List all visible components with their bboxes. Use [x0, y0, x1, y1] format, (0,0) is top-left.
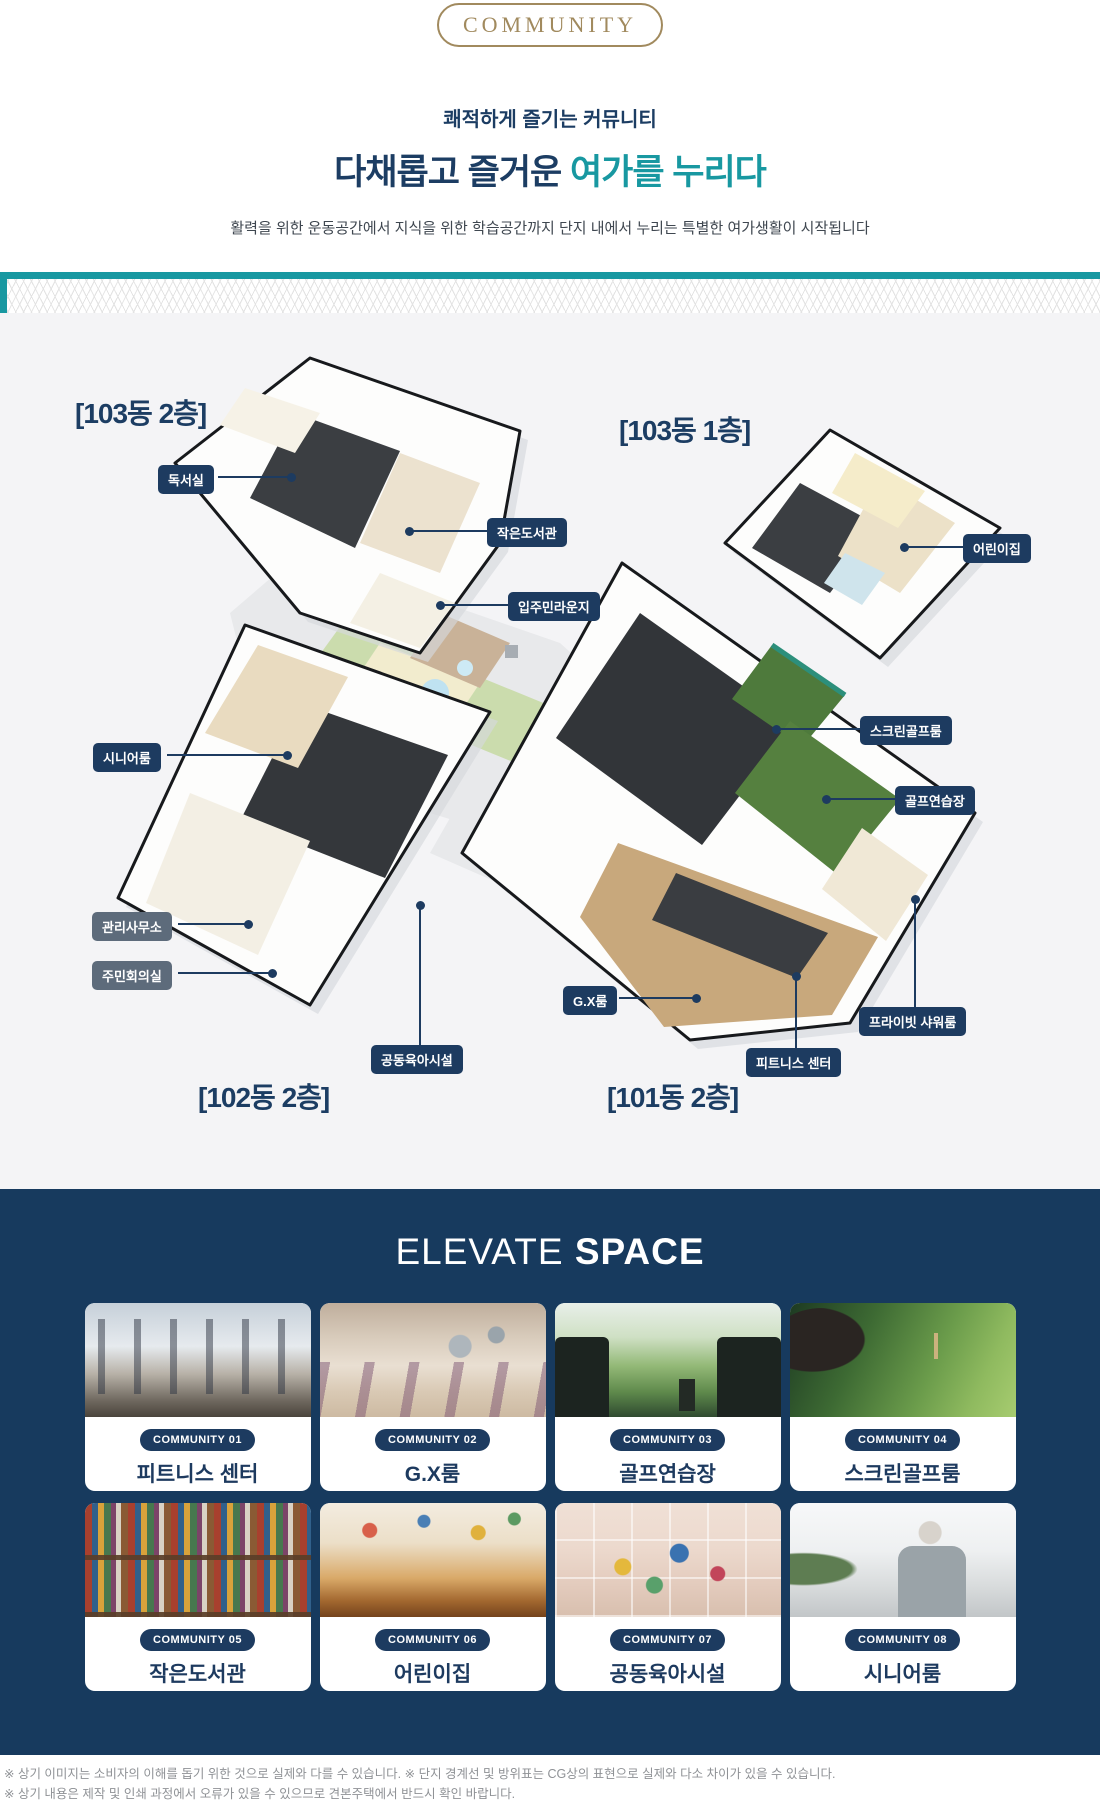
- community-tag: COMMUNITY 05: [140, 1629, 255, 1651]
- building-label-102-2: [102동 2층]: [198, 1076, 329, 1116]
- herringbone-strip: [0, 279, 1100, 313]
- golf-range-photo: [555, 1303, 781, 1417]
- label-management-office: 관리사무소: [92, 912, 172, 941]
- card-gx-room: COMMUNITY 02 G.X룸: [320, 1303, 546, 1491]
- floor-plan-section: [103동 2층] [103동 1층] [102동 2층] [101동 2층] …: [0, 313, 1100, 1189]
- label-private-shower-room: 프라이빗 샤워룸: [859, 1007, 966, 1036]
- childcare-photo: [555, 1503, 781, 1617]
- community-name: 스크린골프룸: [790, 1458, 1016, 1488]
- label-small-library: 작은도서관: [487, 518, 567, 547]
- community-name: 골프연습장: [555, 1458, 781, 1488]
- elevate-space-section: ELEVATE SPACE COMMUNITY 01 피트니스 센터 COMMU…: [0, 1189, 1100, 1755]
- label-senior-room: 시니어룸: [93, 743, 161, 772]
- senior-room-photo: [790, 1503, 1016, 1617]
- leader-line: [776, 728, 862, 730]
- screen-golf-photo: [790, 1303, 1016, 1417]
- card-screen-golf-room: COMMUNITY 04 스크린골프룸: [790, 1303, 1016, 1491]
- leader-line: [178, 972, 272, 974]
- leader-dot: [436, 601, 445, 610]
- daycare-photo: [320, 1503, 546, 1617]
- building-label-103-2: [103동 2층]: [75, 392, 206, 432]
- leader-line: [419, 906, 421, 1047]
- teal-edge-block: [0, 272, 7, 313]
- leader-line: [914, 900, 916, 1009]
- card-senior-room: COMMUNITY 08 시니어룸: [790, 1503, 1016, 1691]
- teal-divider-bar: [0, 272, 1100, 279]
- community-tag: COMMUNITY 02: [375, 1429, 490, 1451]
- disclaimer-line-1: ※ 상기 이미지는 소비자의 이해를 돕기 위한 것으로 실제와 다를 수 있습…: [4, 1764, 1100, 1784]
- community-tag: COMMUNITY 06: [375, 1629, 490, 1651]
- card-fitness-center: COMMUNITY 01 피트니스 센터: [85, 1303, 311, 1491]
- label-golf-practice-range: 골프연습장: [895, 786, 975, 815]
- floor-plan-canvas: [0, 313, 1100, 1189]
- label-fitness-center: 피트니스 센터: [746, 1048, 841, 1077]
- community-name: 작은도서관: [85, 1658, 311, 1688]
- card-communal-childcare: COMMUNITY 07 공동육아시설: [555, 1503, 781, 1691]
- gx-room-photo: [320, 1303, 546, 1417]
- hero-title-highlight: 여가를 누리다: [570, 153, 766, 192]
- leader-line: [826, 798, 897, 800]
- card-daycare: COMMUNITY 06 어린이집: [320, 1503, 546, 1691]
- community-badge: COMMUNITY: [437, 3, 663, 47]
- community-tag: COMMUNITY 01: [140, 1429, 255, 1451]
- label-screen-golf-room: 스크린골프룸: [860, 716, 952, 745]
- library-photo: [85, 1503, 311, 1617]
- leader-dot: [244, 920, 253, 929]
- community-name: G.X룸: [320, 1458, 546, 1488]
- community-name: 피트니스 센터: [85, 1458, 311, 1488]
- community-name: 공동육아시설: [555, 1658, 781, 1688]
- leader-dot: [268, 969, 277, 978]
- leader-dot: [772, 725, 781, 734]
- leader-dot: [792, 972, 801, 981]
- disclaimer-line-2: ※ 상기 내용은 제작 및 인쇄 과정에서 오류가 있을 수 있으므로 견본주택…: [4, 1784, 1100, 1804]
- leader-line: [619, 997, 696, 999]
- community-tag: COMMUNITY 07: [610, 1629, 725, 1651]
- building-label-103-1: [103동 1층]: [619, 409, 750, 449]
- hero-description: 활력을 위한 운동공간에서 지식을 위한 학습공간까지 단지 내에서 누리는 특…: [0, 217, 1100, 238]
- label-resident-lounge: 입주민라운지: [508, 592, 600, 621]
- leader-dot: [416, 901, 425, 910]
- leader-dot: [900, 543, 909, 552]
- label-reading-room: 독서실: [158, 465, 214, 494]
- community-cards-grid: COMMUNITY 01 피트니스 센터 COMMUNITY 02 G.X룸 C…: [0, 1303, 1100, 1691]
- elevate-space-title: ELEVATE SPACE: [0, 1189, 1100, 1273]
- disclaimer-footer: ※ 상기 이미지는 소비자의 이해를 돕기 위한 것으로 실제와 다를 수 있습…: [0, 1755, 1100, 1809]
- card-golf-practice-range: COMMUNITY 03 골프연습장: [555, 1303, 781, 1491]
- leader-line: [795, 977, 797, 1050]
- fitness-center-photo: [85, 1303, 311, 1417]
- leader-line: [178, 923, 248, 925]
- hero-eyebrow: 쾌적하게 즐기는 커뮤니티: [0, 103, 1100, 132]
- hero-title: 다채롭고 즐거운 여가를 누리다: [0, 144, 1100, 195]
- card-small-library: COMMUNITY 05 작은도서관: [85, 1503, 311, 1691]
- leader-line: [218, 476, 291, 478]
- community-tag: COMMUNITY 03: [610, 1429, 725, 1451]
- label-daycare: 어린이집: [963, 534, 1031, 563]
- label-residents-meeting-room: 주민회의실: [92, 961, 172, 990]
- hero-section: COMMUNITY 쾌적하게 즐기는 커뮤니티 다채롭고 즐거운 여가를 누리다…: [0, 0, 1100, 272]
- leader-line: [904, 546, 965, 548]
- label-communal-childcare: 공동육아시설: [371, 1045, 463, 1074]
- leader-dot: [283, 751, 292, 760]
- label-gx-room: G.X룸: [563, 986, 617, 1015]
- leader-dot: [287, 473, 296, 482]
- building-label-101-2: [101동 2층]: [607, 1076, 738, 1116]
- leader-line: [440, 604, 510, 606]
- community-tag: COMMUNITY 04: [845, 1429, 960, 1451]
- leader-dot: [692, 994, 701, 1003]
- community-name: 어린이집: [320, 1658, 546, 1688]
- leader-line: [409, 530, 489, 532]
- leader-dot: [822, 795, 831, 804]
- leader-dot: [911, 895, 920, 904]
- community-tag: COMMUNITY 08: [845, 1629, 960, 1651]
- community-name: 시니어룸: [790, 1658, 1016, 1688]
- leader-line: [167, 754, 287, 756]
- leader-dot: [405, 527, 414, 536]
